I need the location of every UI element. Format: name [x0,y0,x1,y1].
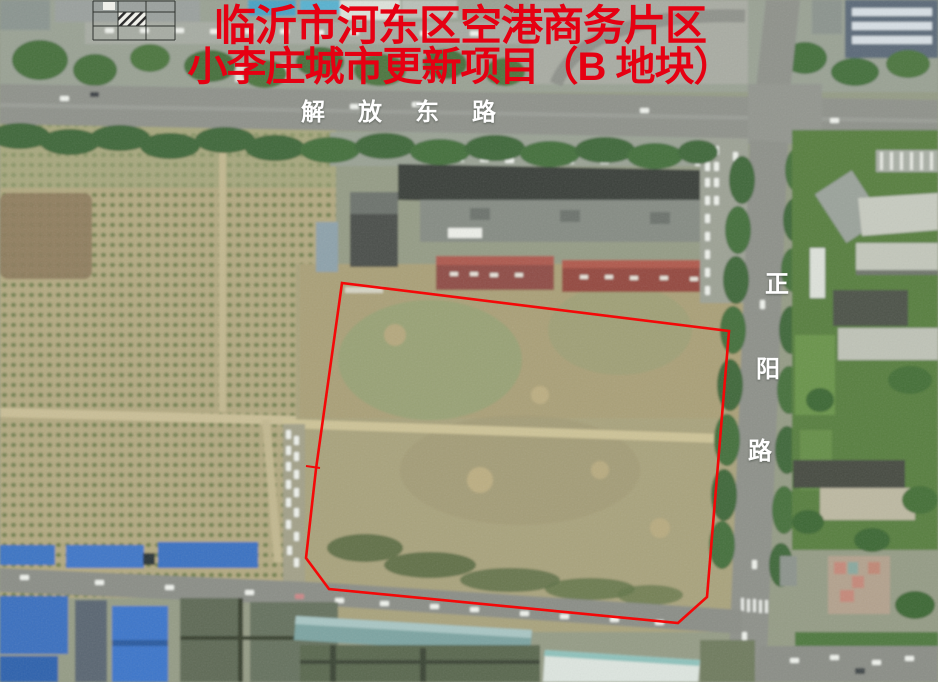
satellite-imagery [0,0,938,682]
photo-grain [0,0,938,682]
aerial-planning-map: 临沂市河东区空港商务片区 小李庄城市更新项目（B 地块） 解放东路 正 阳 路 [0,0,938,682]
